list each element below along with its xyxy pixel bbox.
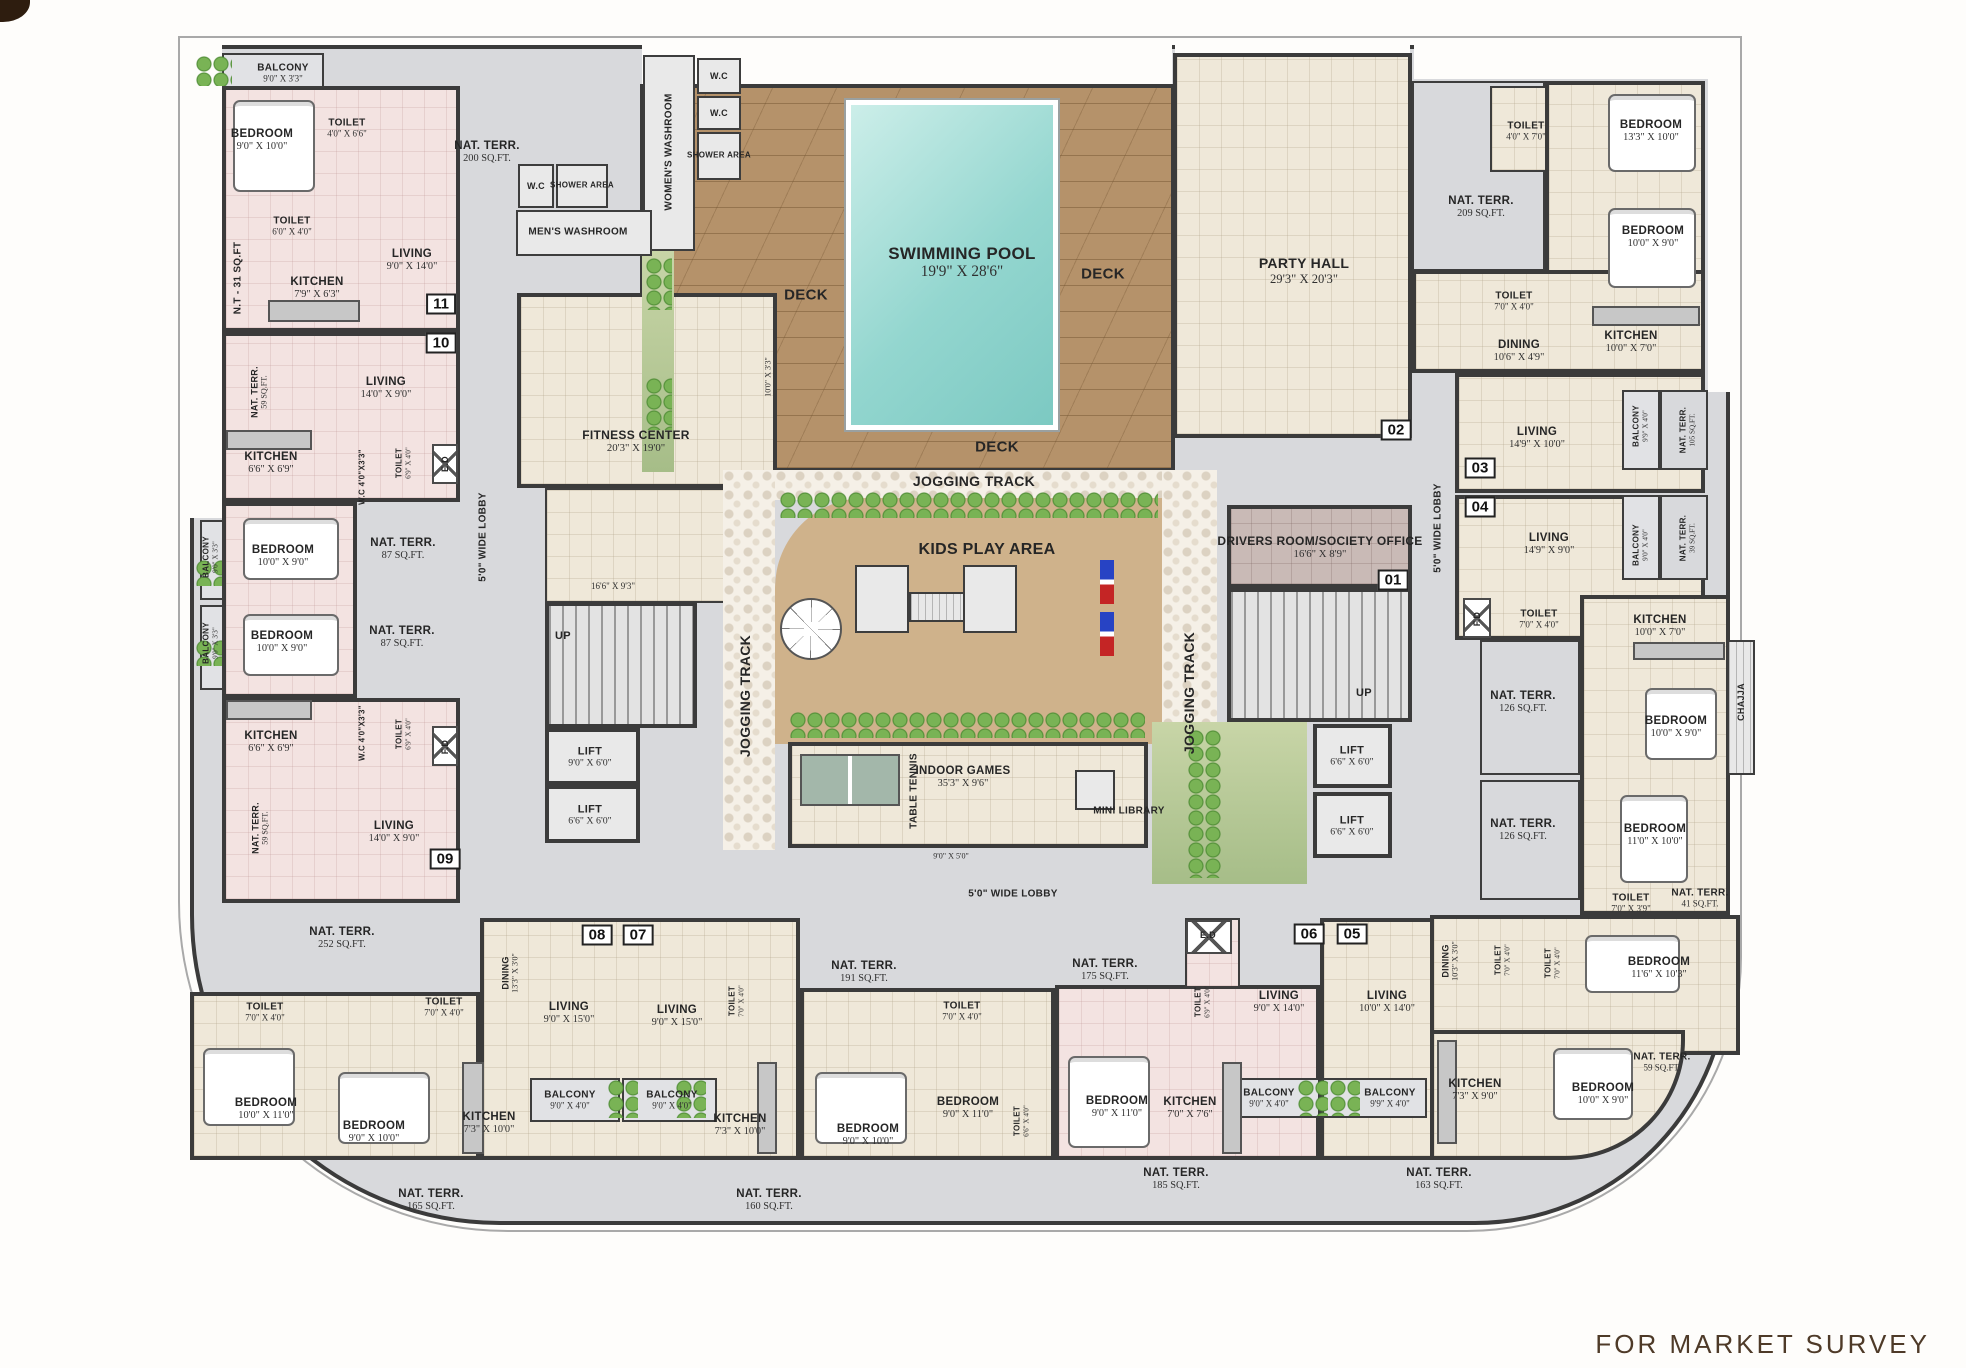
label-title: TOILET	[395, 718, 404, 750]
label-title: KITCHEN	[1604, 330, 1657, 343]
label-dimension: 7'0" X 4'0"	[1503, 944, 1511, 976]
label-title: LIFT	[1330, 744, 1373, 756]
label-title: LIVING	[652, 1004, 703, 1017]
room-label-living: LIVING14'9" X 10'0"	[1509, 426, 1565, 450]
room-label-5-0-wide-lobby: 5'0" WIDE LOBBY	[968, 888, 1057, 899]
room-label-kitchen: KITCHEN10'0" X 7'0"	[1633, 614, 1686, 638]
room-label-nat-terr: NAT. TERR.163 SQ.FT.	[1406, 1167, 1471, 1191]
label-title: NAT. TERR.	[1143, 1167, 1208, 1180]
bushes-balc-08	[608, 1080, 638, 1118]
label-dimension: 9'0" X 10'0"	[231, 141, 293, 153]
room-label-balcony: BALCONY9'0" X 3'3"	[257, 62, 309, 83]
table-tennis-table	[800, 754, 900, 806]
cutout-top-partyhall	[1175, 40, 1410, 53]
room-label-toilet: TOILET4'0" X 6'6"	[327, 117, 367, 138]
label-dimension: 39 SQ.FT.	[1688, 515, 1696, 561]
label-title: NAT. TERR.	[831, 960, 896, 973]
floorplan-page: BALCONY9'0" X 3'3"BEDROOM9'0" X 10'0"TOI…	[0, 0, 1966, 1368]
room-label-nat-terr: NAT. TERR.200 SQ.FT.	[454, 140, 519, 164]
room-label-nat-terr: NAT. TERR.185 SQ.FT.	[1143, 1167, 1208, 1191]
room-label-bedroom: BEDROOM10'0" X 11'0"	[235, 1097, 297, 1121]
label-title: DRIVERS ROOM/SOCIETY OFFICE	[1217, 535, 1422, 548]
room-label-w-c: W.C	[710, 108, 728, 118]
label-dimension: 9'0" X 14'0"	[1254, 1003, 1305, 1015]
label-title: NAT. TERR.	[1448, 195, 1513, 208]
label-title: LIVING	[369, 820, 420, 833]
label-title: BALCONY	[202, 536, 211, 578]
room-label-5-0-wide-lobby: 5'0" WIDE LOBBY	[477, 492, 488, 581]
label-dimension: 41 SQ.FT.	[1671, 899, 1728, 909]
label-dimension: 10'0" X 7'0"	[1604, 343, 1657, 355]
label-dimension: 10'0" X 11'0"	[235, 1110, 297, 1122]
label-dimension: 11'0" X 10'0"	[1624, 836, 1686, 848]
label-dimension: 9'0" X 4'0"	[544, 1101, 596, 1111]
room-label-bedroom: BEDROOM9'0" X 10'0"	[343, 1120, 405, 1144]
room-label-toilet: TOILET7'0" X 4'0"	[1494, 290, 1534, 311]
room-label-living: LIVING10'0" X 14'0"	[1359, 990, 1415, 1014]
play-spiral	[780, 598, 842, 660]
room-label-lift: LIFT6'6" X 6'0"	[568, 803, 611, 826]
room-label-e-d: E.D	[1200, 930, 1216, 940]
label-dimension: 10'0" X 3'3"	[763, 357, 772, 397]
label-dimension: 6'9" X 4'0"	[404, 718, 412, 750]
label-title: BALCONY	[1243, 1087, 1295, 1098]
counter-08	[462, 1062, 484, 1154]
label-title: BALCONY	[646, 1089, 698, 1100]
room-label-living: LIVING9'0" X 14'0"	[1254, 990, 1305, 1014]
room-label-bedroom: BEDROOM10'0" X 9'0"	[1622, 225, 1684, 249]
label-dimension: 165 SQ.FT.	[398, 1201, 463, 1213]
room-label-kitchen: KITCHEN6'6" X 6'9"	[244, 451, 297, 475]
room-label-balcony: BALCONY9'0" X 4'0"	[544, 1089, 596, 1110]
bushes-kids-bottom	[790, 712, 1145, 738]
label-title: CHAJJA	[1736, 683, 1746, 721]
label-dimension: 10'0" X 9'0"	[251, 643, 313, 655]
green-right-area	[1152, 722, 1307, 884]
unit-badge-05: 05	[1337, 924, 1368, 945]
label-dimension: 10'6" X 4'9"	[1494, 352, 1545, 364]
label-title: SWIMMING POOL	[888, 244, 1035, 263]
label-dimension: 209 SQ.FT.	[1448, 208, 1513, 220]
label-title: TOILET	[395, 447, 404, 479]
room-label-nat-terr: NAT. TERR.160 SQ.FT.	[736, 1188, 801, 1212]
room-label-nat-terr: NAT. TERR.59 SQ.FT.	[249, 366, 268, 418]
room-label-balcony: BALCONY9'0" X 4'0"	[1243, 1087, 1295, 1108]
label-dimension: 160 SQ.FT.	[736, 1201, 801, 1213]
room-label-living: LIVING9'0" X 14'0"	[387, 248, 438, 272]
room-label-bedroom: BEDROOM10'0" X 9'0"	[1645, 715, 1707, 739]
unit-badge-07: 07	[623, 925, 654, 946]
label-title: TOILET	[1544, 947, 1553, 979]
label-dimension: 9'9" X 4'0"	[1641, 405, 1649, 447]
label-dimension: 7'0" X 4'0"	[245, 1013, 285, 1023]
label-title: LIFT	[568, 745, 611, 757]
room-label-deck: DECK	[1081, 267, 1125, 284]
label-dimension: 14'0" X 9'0"	[369, 833, 420, 845]
label-dimension: 9'0" X 15'0"	[544, 1014, 595, 1026]
label-dimension: 9'0" X 10'0"	[343, 1133, 405, 1145]
label-title: KITCHEN	[244, 451, 297, 464]
label-dimension: 10'0" X 9'0"	[252, 557, 314, 569]
room-label-drivers-room-society-office: DRIVERS ROOM/SOCIETY OFFICE16'6" X 8'9"	[1217, 535, 1422, 561]
play-tower-1	[855, 565, 909, 633]
label-dimension: 11'6" X 10'3"	[1628, 969, 1690, 981]
label-title: BEDROOM	[252, 544, 314, 557]
label-title: TOILET	[1013, 1105, 1022, 1137]
label-title: PARTY HALL	[1259, 256, 1349, 272]
label-title: LIVING	[544, 1001, 595, 1014]
label-title: BALCONY	[1632, 405, 1641, 447]
label-dimension: 16'6" X 9'3"	[591, 581, 635, 591]
floor-plan-canvas: BALCONY9'0" X 3'3"BEDROOM9'0" X 10'0"TOI…	[0, 0, 1966, 1368]
label-title: LIFT	[568, 803, 611, 815]
label-title: TOILET	[1494, 290, 1534, 301]
label-dimension: 14'0" X 9'0"	[361, 389, 412, 401]
counter-10	[226, 430, 312, 450]
label-dimension: 4'0" X 6'6"	[327, 129, 367, 139]
room-label-dining: DINING13'3" X 3'0"	[500, 953, 519, 993]
label-dimension: 126 SQ.FT.	[1490, 703, 1555, 715]
label-title: LIVING	[1254, 990, 1305, 1003]
room-label-nat-terr: NAT. TERR.41 SQ.FT.	[1671, 887, 1728, 908]
label-title: KITCHEN	[1448, 1078, 1501, 1091]
bushes-pool-left-1	[646, 258, 672, 310]
room-label-living: LIVING9'0" X 15'0"	[544, 1001, 595, 1025]
label-title: W.C	[710, 71, 728, 81]
label-dimension: 175 SQ.FT.	[1072, 971, 1137, 983]
label-title: LIVING	[1509, 426, 1565, 439]
room-label-nat-terr: NAT. TERR.59 SQ.FT.	[1633, 1051, 1690, 1072]
label-title: BALCONY	[1364, 1087, 1416, 1098]
label-title: DECK	[784, 288, 828, 305]
label-title: W.C 4'0"X3'3"	[359, 705, 368, 761]
room-label-kitchen: KITCHEN10'0" X 7'0"	[1604, 330, 1657, 354]
label-dimension: 14'9" X 10'0"	[1509, 439, 1565, 451]
label-dimension: 10'0" X 9'0"	[1645, 728, 1707, 740]
label-dimension: 6'0" X 4'0"	[272, 227, 312, 237]
room-label-16-6-x-9-3: 16'6" X 9'3"	[591, 581, 635, 591]
room-label-shower-area: SHOWER AREA	[550, 182, 614, 191]
label-title: DECK	[1081, 267, 1125, 284]
label-dimension: 6'6" X 6'0"	[1330, 757, 1373, 768]
room-label-w-c-4-0-x3-3: W.C 4'0"X3'3"	[359, 449, 368, 505]
room-label-toilet: TOILET6'9" X 4'0"	[395, 718, 412, 750]
label-dimension: 9'0" X 14'0"	[387, 261, 438, 273]
label-title: BALCONY	[257, 62, 309, 73]
label-title: KITCHEN	[1163, 1096, 1216, 1109]
label-dimension: 7'3" X 10'0"	[462, 1124, 515, 1136]
unit-badge-02: 02	[1381, 420, 1412, 441]
label-dimension: 6'9" X 4'0"	[1203, 986, 1211, 1018]
room-label-nat-terr: NAT. TERR.175 SQ.FT.	[1072, 958, 1137, 982]
label-title: NAT. TERR.	[309, 926, 374, 939]
label-title: TOILET	[272, 215, 312, 226]
label-title: BEDROOM	[231, 128, 293, 141]
room-label-balcony: BALCONY9'0" X 3'3"	[202, 536, 219, 578]
label-title: TOILET	[1506, 120, 1546, 131]
room-label-balcony: BALCONY9'0" X 3'3"	[202, 622, 219, 664]
label-dimension: 7'0" X 4'0"	[424, 1008, 464, 1018]
room-label-bedroom: BEDROOM10'0" X 9'0"	[252, 544, 314, 568]
label-title: DINING	[500, 953, 510, 993]
unit-badge-06: 06	[1294, 924, 1325, 945]
room-label-toilet: TOILET6'6" X 4'0"	[1013, 1105, 1030, 1137]
label-title: BEDROOM	[1624, 823, 1686, 836]
room-label-bedroom: BEDROOM9'0" X 10'0"	[837, 1123, 899, 1147]
label-title: 5'0" WIDE LOBBY	[1432, 483, 1443, 572]
label-title: BEDROOM	[1620, 119, 1682, 132]
bushes-balc-11	[196, 56, 232, 86]
room-label-balcony: BALCONY9'9" X 4'0"	[1364, 1087, 1416, 1108]
label-dimension: 9'0" X 6'0"	[568, 758, 611, 769]
label-title: INDOOR GAMES	[916, 765, 1011, 778]
room-label-bedroom: BEDROOM10'0" X 9'0"	[251, 630, 313, 654]
room-label-10-0-x-3-3: 10'0" X 3'3"	[763, 357, 772, 397]
label-title: UP	[1356, 687, 1372, 699]
label-title: NAT. TERR.	[1072, 958, 1137, 971]
label-dimension: 7'9" X 6'3"	[290, 289, 343, 301]
room-label-toilet: TOILET6'0" X 4'0"	[272, 215, 312, 236]
label-title: MEN'S WASHROOM	[528, 226, 627, 237]
label-title: NAT. TERR.	[1679, 515, 1688, 561]
room-label-toilet: TOILET7'0" X 4'0"	[1544, 947, 1561, 979]
room-label-nat-terr: NAT. TERR.191 SQ.FT.	[831, 960, 896, 984]
room-label-f-d: F.D	[440, 740, 450, 754]
play-bridge	[909, 592, 967, 622]
label-title: E.D	[440, 456, 450, 472]
label-dimension: 6'6" X 4'0"	[1022, 1105, 1030, 1137]
label-title: TOILET	[1194, 986, 1203, 1018]
room-label-n-t-31-sq-ft: N.T - 31 SQ.FT	[232, 242, 243, 315]
unit-badge-01: 01	[1378, 570, 1409, 591]
left-stairs-area	[545, 602, 697, 728]
counter-07	[757, 1062, 777, 1154]
label-dimension: 9'0" X 4'0"	[1243, 1099, 1295, 1109]
label-dimension: 10'0" X 7'0"	[1633, 627, 1686, 639]
label-title: BEDROOM	[837, 1123, 899, 1136]
room-label-women-s-washroom: WOMEN'S WASHROOM	[663, 93, 674, 210]
label-dimension: 10'0" X 9'0"	[1622, 238, 1684, 250]
label-title: BEDROOM	[251, 630, 313, 643]
label-dimension: 6'6" X 6'9"	[244, 743, 297, 755]
label-title: TOILET	[728, 985, 737, 1017]
room-label-kitchen: KITCHEN7'9" X 6'3"	[290, 276, 343, 300]
label-dimension: 6'6" X 6'9"	[244, 464, 297, 476]
label-dimension: 10'0" X 14'0"	[1359, 1003, 1415, 1015]
room-label-kitchen: KITCHEN7'3" X 9'0"	[1448, 1078, 1501, 1102]
label-dimension: 163 SQ.FT.	[1406, 1180, 1471, 1192]
label-title: FITNESS CENTER	[582, 429, 690, 442]
room-label-5-0-wide-lobby: 5'0" WIDE LOBBY	[1432, 483, 1443, 572]
label-title: KITCHEN	[713, 1113, 766, 1126]
label-dimension: 16'6" X 8'9"	[1217, 549, 1422, 561]
room-label-nat-terr: NAT. TERR.87 SQ.FT.	[370, 537, 435, 561]
room-label-balcony: BALCONY9'0" X 4'0"	[646, 1089, 698, 1110]
room-label-deck: DECK	[784, 288, 828, 305]
room-label-9-0-x-5-0: 9'0" X 5'0"	[933, 851, 969, 860]
room-label-nat-terr: NAT. TERR.252 SQ.FT.	[309, 926, 374, 950]
cutout-left	[180, 38, 222, 518]
label-title: W.C	[527, 181, 545, 191]
room-label-party-hall: PARTY HALL29'3" X 20'3"	[1259, 256, 1349, 286]
room-label-deck: DECK	[975, 440, 1019, 457]
label-dimension: 200 SQ.FT.	[454, 153, 519, 165]
unit-badge-04: 04	[1465, 497, 1496, 518]
label-dimension: 9'0" X 4'0"	[1641, 524, 1649, 566]
label-dimension: 20'3" X 19'0"	[582, 443, 690, 455]
label-title: KITCHEN	[244, 730, 297, 743]
label-title: LIVING	[1359, 990, 1415, 1003]
room-label-men-s-washroom: MEN'S WASHROOM	[528, 226, 627, 237]
label-title: NAT. TERR.	[736, 1188, 801, 1201]
label-dimension: 185 SQ.FT.	[1143, 1180, 1208, 1192]
room-label-w-c: W.C	[527, 181, 545, 191]
label-title: BEDROOM	[343, 1120, 405, 1133]
label-title: DECK	[975, 440, 1019, 457]
room-label-kitchen: KITCHEN7'3" X 10'0"	[713, 1113, 766, 1137]
watermark-text: FOR MARKET SURVEY	[1595, 1329, 1930, 1360]
room-label-toilet: TOILET7'0" X 4'0"	[1494, 944, 1511, 976]
label-title: TOILET	[327, 117, 367, 128]
label-title: KITCHEN	[462, 1111, 515, 1124]
label-title: JOGGING TRACK	[1182, 632, 1198, 754]
party-hall-area	[1173, 53, 1412, 438]
label-dimension: 13'3" X 3'0"	[511, 953, 520, 993]
room-label-jogging-track: JOGGING TRACK	[738, 635, 754, 757]
room-label-living: LIVING9'0" X 15'0"	[652, 1004, 703, 1028]
label-title: BEDROOM	[1572, 1082, 1634, 1095]
label-title: SHOWER AREA	[687, 152, 751, 161]
label-dimension: 19'9" X 28'6"	[888, 263, 1035, 280]
label-title: KITCHEN	[290, 276, 343, 289]
label-dimension: 59 SQ.FT.	[261, 802, 270, 854]
label-dimension: 87 SQ.FT.	[369, 638, 434, 650]
room-label-chajja: CHAJJA	[1736, 683, 1746, 721]
label-title: TOILET	[1519, 608, 1559, 619]
label-title: NAT. TERR.	[1633, 1051, 1690, 1062]
room-label-bedroom: BEDROOM10'0" X 9'0"	[1572, 1082, 1634, 1106]
label-title: NAT. TERR.	[1679, 407, 1688, 453]
label-title: F.D	[1472, 612, 1482, 626]
room-label-bedroom: BEDROOM13'3" X 10'0"	[1620, 119, 1682, 143]
label-title: BALCONY	[544, 1089, 596, 1100]
label-title: SHOWER AREA	[550, 182, 614, 191]
label-title: NAT. TERR.	[1490, 818, 1555, 831]
room-label-indoor-games: INDOOR GAMES35'3" X 9'6"	[916, 765, 1011, 789]
label-title: WOMEN'S WASHROOM	[663, 93, 674, 210]
label-title: LIVING	[361, 376, 412, 389]
label-dimension: 7'0" X 4'0"	[1519, 620, 1559, 630]
label-dimension: 35'3" X 9'6"	[916, 778, 1011, 790]
label-dimension: 9'0" X 4'0"	[646, 1101, 698, 1111]
label-dimension: 13'3" X 10'0"	[1620, 132, 1682, 144]
page-corner	[0, 0, 30, 22]
label-dimension: 9'9" X 4'0"	[1364, 1099, 1416, 1109]
room-label-jogging-track: JOGGING TRACK	[913, 474, 1035, 490]
play-tower-2	[963, 565, 1017, 633]
label-title: NAT. TERR.	[369, 625, 434, 638]
unit-badge-09: 09	[430, 849, 461, 870]
room-label-up: UP	[1356, 687, 1372, 699]
play-seesaw-2	[1100, 612, 1114, 656]
label-dimension: 7'3" X 9'0"	[1448, 1091, 1501, 1103]
label-dimension: 9'0" X 11'0"	[1086, 1108, 1148, 1120]
label-title: NAT. TERR.	[1406, 1167, 1471, 1180]
room-label-f-d: F.D	[1472, 612, 1482, 626]
label-title: DINING	[1440, 941, 1450, 981]
label-title: LIFT	[1330, 814, 1373, 826]
room-label-nat-terr: NAT. TERR.126 SQ.FT.	[1490, 690, 1555, 714]
room-label-toilet: TOILET6'9" X 4'0"	[1194, 986, 1211, 1018]
label-title: BEDROOM	[1622, 225, 1684, 238]
label-dimension: 9'0" X 5'0"	[933, 851, 969, 860]
label-title: KIDS PLAY AREA	[919, 541, 1056, 559]
label-dimension: 7'0" X 7'6"	[1163, 1109, 1216, 1121]
label-title: N.T - 31 SQ.FT	[232, 242, 243, 315]
label-dimension: 59 SQ.FT.	[1633, 1063, 1690, 1073]
label-title: BALCONY	[1632, 524, 1641, 566]
label-dimension: 6'6" X 6'0"	[1330, 827, 1373, 838]
label-dimension: 7'0" X 4'0"	[1553, 947, 1561, 979]
label-title: UP	[555, 630, 571, 642]
label-dimension: 191 SQ.FT.	[831, 973, 896, 985]
label-title: NAT. TERR.	[1671, 887, 1728, 898]
room-label-nat-terr: NAT. TERR.105 SQ.FT.	[1679, 407, 1696, 453]
label-title: DINING	[1494, 339, 1545, 352]
label-dimension: 59 SQ.FT.	[260, 366, 269, 418]
label-dimension: 10'3" X 3'0"	[1451, 941, 1460, 981]
label-dimension: 6'9" X 4'0"	[404, 447, 412, 479]
label-title: JOGGING TRACK	[913, 474, 1035, 490]
label-title: W.C 4'0"X3'3"	[359, 449, 368, 505]
room-label-nat-terr: NAT. TERR.126 SQ.FT.	[1490, 818, 1555, 842]
room-label-kitchen: KITCHEN7'0" X 7'6"	[1163, 1096, 1216, 1120]
label-title: JOGGING TRACK	[738, 635, 754, 757]
room-label-balcony: BALCONY9'0" X 4'0"	[1632, 524, 1649, 566]
counter-11	[268, 300, 360, 322]
label-title: KITCHEN	[1633, 614, 1686, 627]
right-stairs-area	[1227, 588, 1412, 722]
label-title: TOILET	[245, 1001, 285, 1012]
label-title: BEDROOM	[1086, 1095, 1148, 1108]
room-label-w-c: W.C	[710, 71, 728, 81]
label-dimension: 29'3" X 20'3"	[1259, 272, 1349, 286]
label-title: TOILET	[1494, 944, 1503, 976]
label-dimension: 7'0" X 4'0"	[942, 1012, 982, 1022]
room-label-bedroom: BEDROOM11'6" X 10'3"	[1628, 956, 1690, 980]
label-title: NAT. TERR.	[370, 537, 435, 550]
room-label-swimming-pool: SWIMMING POOL19'9" X 28'6"	[888, 244, 1035, 280]
label-title: 5'0" WIDE LOBBY	[477, 492, 488, 581]
room-label-toilet: TOILET7'0" X 4'0"	[728, 985, 745, 1017]
label-dimension: 252 SQ.FT.	[309, 939, 374, 951]
room-label-shower-area: SHOWER AREA	[687, 152, 751, 161]
unit-badge-03: 03	[1465, 458, 1496, 479]
label-dimension: 10'0" X 9'0"	[1572, 1095, 1634, 1107]
room-label-bedroom: BEDROOM9'0" X 11'0"	[1086, 1095, 1148, 1119]
label-title: BALCONY	[202, 622, 211, 664]
label-title: NAT. TERR.	[398, 1188, 463, 1201]
room-label-lift: LIFT6'6" X 6'0"	[1330, 814, 1373, 837]
label-dimension: 7'0" X 3'9"	[1611, 904, 1651, 914]
bushes-pool-left-2	[646, 378, 672, 430]
label-dimension: 7'0" X 4'0"	[1494, 302, 1534, 312]
room-label-bedroom: BEDROOM11'0" X 10'0"	[1624, 823, 1686, 847]
bushes-kids-top	[780, 492, 1158, 518]
room-label-kids-play-area: KIDS PLAY AREA	[919, 541, 1056, 559]
counter-06	[1222, 1062, 1242, 1154]
label-dimension: 9'0" X 15'0"	[652, 1017, 703, 1029]
